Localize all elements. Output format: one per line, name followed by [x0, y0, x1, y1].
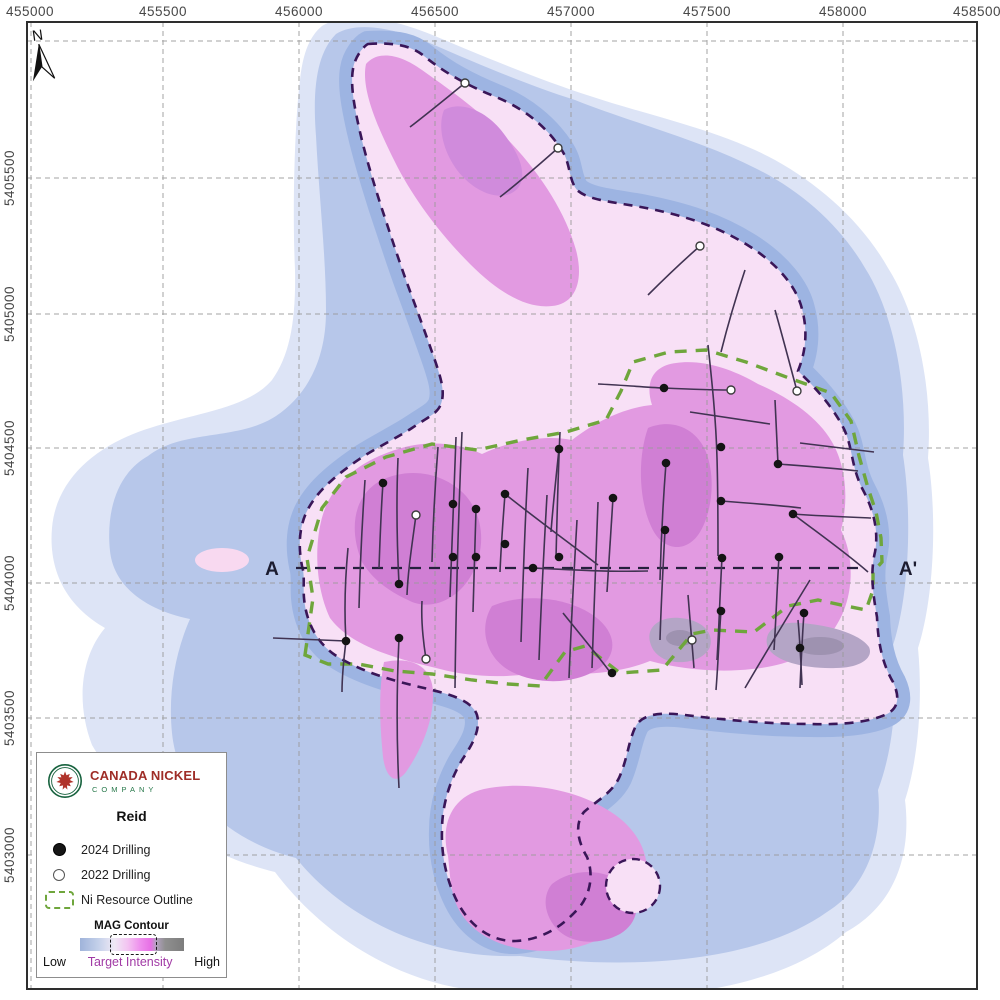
- axis-tick-label: 458000: [819, 4, 867, 19]
- axis-tick-label: 5404500: [2, 420, 17, 476]
- drill-collar: [449, 553, 458, 562]
- company-brand: CANADA NICKEL COMPANY: [47, 763, 218, 799]
- resource-outline-symbol: [37, 891, 81, 909]
- drill-collar: [342, 637, 351, 646]
- drill-collar: [395, 580, 404, 589]
- axis-tick-label: 5403500: [2, 690, 17, 746]
- drill-collar: [789, 510, 798, 519]
- section-label-a: A: [265, 559, 279, 580]
- axis-tick-label: 457500: [683, 4, 731, 19]
- axis-tick-label: 5404000: [2, 555, 17, 611]
- axis-tick-label: 5403000: [2, 827, 17, 883]
- drill-collar: [717, 443, 726, 452]
- drilling-2024-symbol: [37, 843, 81, 856]
- drill-collar: [449, 500, 458, 509]
- drill-collar: [412, 511, 420, 519]
- drill-collar: [718, 554, 727, 563]
- project-title: Reid: [37, 808, 226, 824]
- axis-tick-label: 455500: [139, 4, 187, 19]
- axis-tick-label: 5405500: [2, 150, 17, 206]
- drill-collar: [554, 144, 562, 152]
- drill-collar: [472, 553, 481, 562]
- target-intensity-window: [110, 934, 158, 955]
- map-page: A A' N 455000 455500 456000 456500 45700…: [0, 0, 1000, 1000]
- mag-contour-colorbar: [80, 938, 184, 951]
- drill-collar: [774, 460, 783, 469]
- drill-collar: [793, 387, 801, 395]
- drill-collar: [660, 384, 669, 393]
- axis-tick-label: 455000: [6, 4, 54, 19]
- company-name-line1: CANADA NICKEL: [90, 768, 200, 783]
- mag-scale-labels: Low Target Intensity High: [43, 955, 220, 969]
- maple-leaf-icon: [56, 771, 73, 789]
- drill-collar: [717, 497, 726, 506]
- section-label-a-prime: A': [899, 559, 917, 580]
- drill-collar: [555, 553, 564, 562]
- mag-scale-low: Low: [43, 955, 66, 969]
- drill-collar: [501, 540, 510, 549]
- contour-detached-blob: [606, 859, 660, 913]
- legend-item-label: 2022 Drilling: [81, 868, 150, 882]
- drill-collar: [501, 490, 510, 499]
- drill-collar: [800, 609, 809, 618]
- mag-scale-high: High: [194, 955, 220, 969]
- drill-collar: [661, 526, 670, 535]
- drill-collar: [395, 634, 404, 643]
- drill-collar: [796, 644, 805, 653]
- filled-dot-icon: [53, 843, 66, 856]
- axis-tick-label: 456000: [275, 4, 323, 19]
- company-name-line2: COMPANY: [92, 785, 200, 794]
- drill-collar: [472, 505, 481, 514]
- axis-tick-label: 456500: [411, 4, 459, 19]
- legend-panel: CANADA NICKEL COMPANY Reid 2024 Drilling…: [36, 752, 227, 978]
- legend-item-ni-resource-outline: Ni Resource Outline: [37, 887, 226, 912]
- axis-tick-label: 457000: [547, 4, 595, 19]
- drill-collar: [688, 636, 696, 644]
- legend-item-label: Ni Resource Outline: [81, 893, 193, 907]
- company-name: CANADA NICKEL COMPANY: [90, 768, 200, 794]
- drill-collar: [696, 242, 704, 250]
- drill-collar: [608, 669, 617, 678]
- drilling-2022-symbol: [37, 869, 81, 881]
- legend-item-2024-drilling: 2024 Drilling: [37, 837, 226, 862]
- drill-collar: [727, 386, 735, 394]
- axis-left: 5405500 5405000 5404500 5404000 5403500 …: [2, 150, 17, 883]
- drill-collar: [609, 494, 618, 503]
- mag-scale-target: Target Intensity: [88, 955, 173, 969]
- mag-contour-title: MAG Contour: [37, 920, 226, 932]
- legend-items: 2024 Drilling 2022 Drilling Ni Resource …: [37, 837, 226, 912]
- axis-tick-label: 5405000: [2, 286, 17, 342]
- drill-collar: [662, 459, 671, 468]
- drill-collar: [422, 655, 430, 663]
- dashed-box-icon: [45, 891, 74, 909]
- drill-collar: [379, 479, 388, 488]
- drill-collar: [717, 607, 726, 616]
- legend-item-label: 2024 Drilling: [81, 843, 150, 857]
- open-dot-icon: [53, 869, 65, 881]
- axis-tick-label: 458500: [953, 4, 1000, 19]
- axis-top: 455000 455500 456000 456500 457000 45750…: [6, 4, 1000, 19]
- drill-collar: [529, 564, 538, 573]
- drill-collar: [461, 79, 469, 87]
- drill-collar: [555, 445, 564, 454]
- drill-collar: [775, 553, 784, 562]
- legend-item-2022-drilling: 2022 Drilling: [37, 862, 226, 887]
- company-logo-icon: [47, 763, 83, 799]
- contour-pale-lens: [195, 548, 249, 572]
